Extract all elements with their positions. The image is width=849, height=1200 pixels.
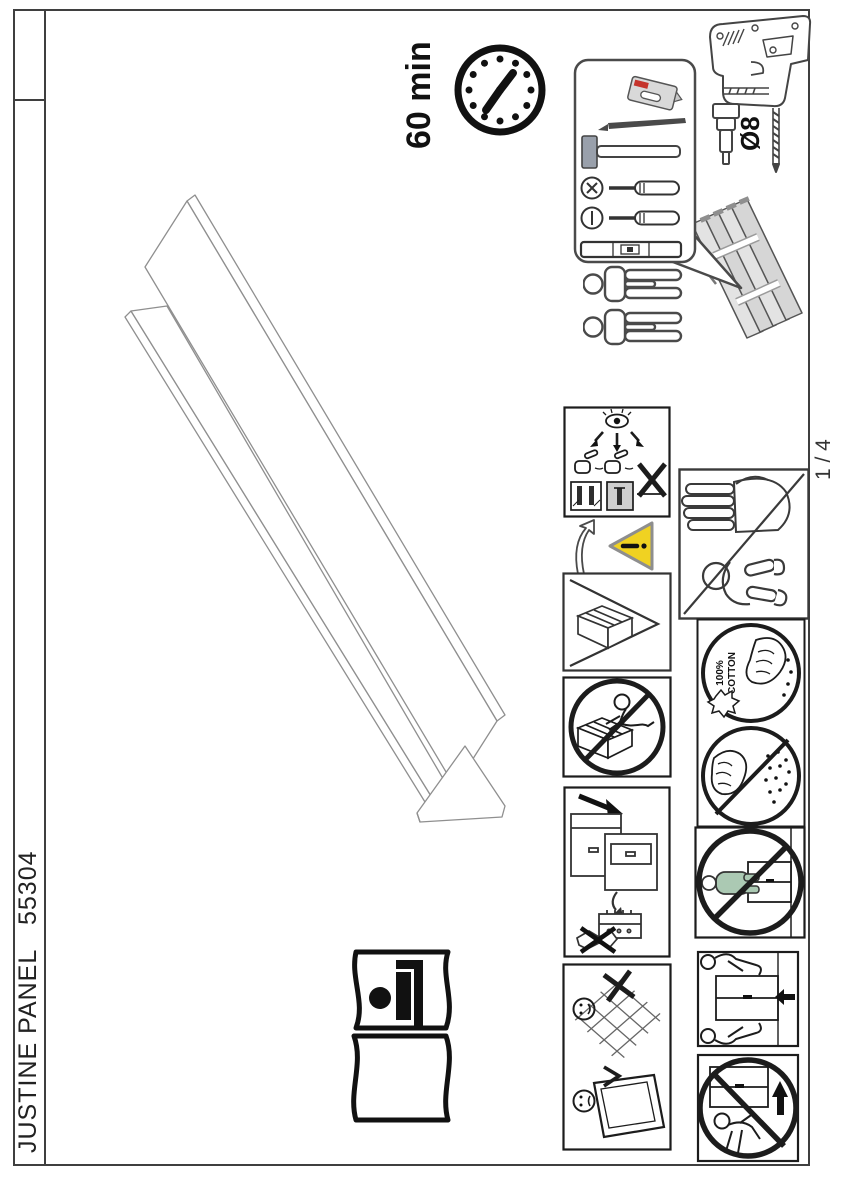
cotton-label-percent: 100% [715,660,726,686]
assembly-time-label: 60 min [402,34,450,156]
drill-handle-cutout [763,36,793,57]
keep-fittings-pictogram [563,786,671,958]
person-icon-1 [583,263,685,305]
instruction-sheet-page: JUSTINE PANEL 55304 60 min Ø8 1 / 4 [0,0,849,1200]
wall-mount-bed-icon [316,940,466,1140]
no-dragging-pictogram [696,1053,800,1163]
flip-arrow-icon [570,518,604,576]
person-icon-2 [583,306,685,348]
level-icon [581,242,681,257]
page-number: 1 / 4 [813,420,847,500]
drill-chuck [713,104,739,164]
drill-bit-icon [773,108,779,172]
warning-triangle-icon [608,520,654,572]
wall-panel-bottom [354,1036,450,1120]
no-standing-pictogram [562,676,672,778]
adults-only-pictogram [678,468,810,620]
clock-icon [450,40,550,140]
title-strip-divider-horizontal [13,99,46,101]
carry-with-two-pictogram [696,950,800,1048]
panel-isometric-drawing [115,185,525,835]
wall-check-pictogram [563,406,671,518]
panel-wide-face [145,201,497,787]
product-code: 55304 [16,840,46,935]
adult-hand-icon [682,477,790,532]
cotton-cleaning-pictogram: 100% COTTON [696,618,806,828]
cotton-label-word: COTTON [727,652,738,694]
soft-surface-pictogram [562,963,672,1151]
parts-box-pictogram [562,572,672,672]
drill-icon [693,12,815,180]
no-pushing-pictogram [694,826,806,939]
product-title: JUSTINE PANEL [16,938,46,1163]
